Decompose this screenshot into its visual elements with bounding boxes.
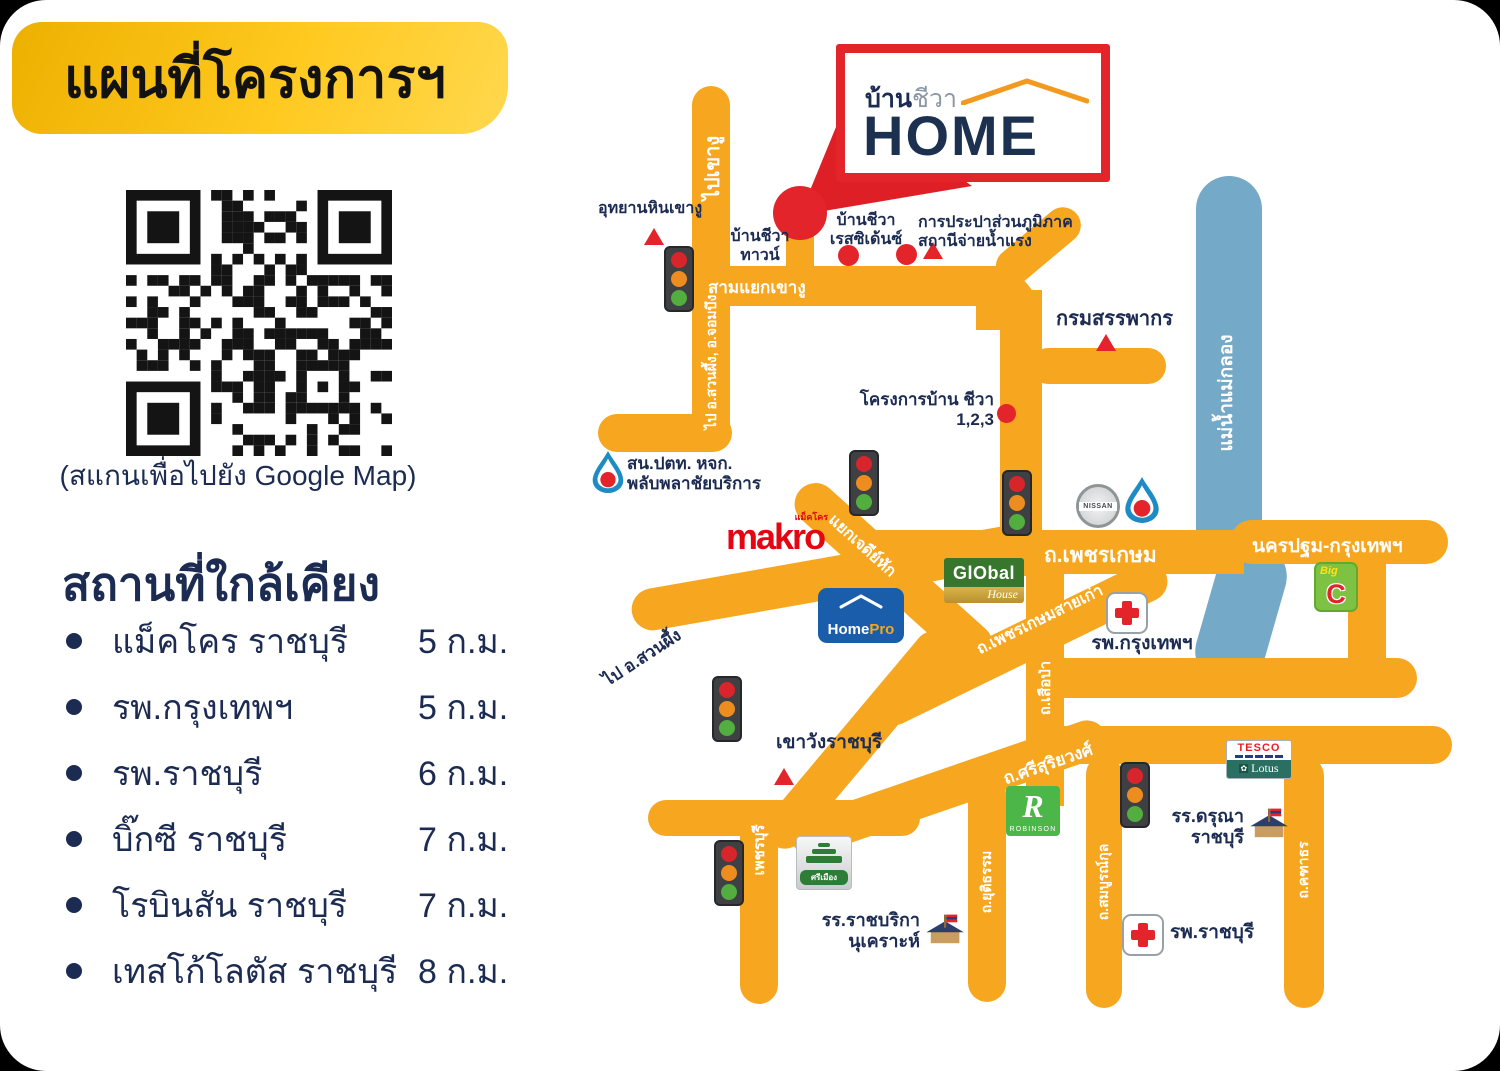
place-distance: 6 ก.ม. xyxy=(418,746,508,800)
road-label-kathathorn: ถ.คฑาธร xyxy=(1293,841,1315,898)
makro-logo: makro แม็คโคร xyxy=(726,516,824,558)
bullet-icon xyxy=(66,765,82,781)
qr-code xyxy=(126,190,392,456)
logo-home-text: HOME xyxy=(863,103,1039,168)
traffic-light-icon xyxy=(1120,762,1150,828)
qr-caption: (สแกนเพื่อไปยัง Google Map) xyxy=(58,454,418,498)
label-residence: บ้านชีวา เรสซิเด้นซ์ xyxy=(818,212,914,250)
place-name: โรบินสัน ราชบุรี xyxy=(112,878,418,932)
traffic-light-icon xyxy=(714,840,744,906)
list-item: โรบินสัน ราชบุรี7 ก.ม. xyxy=(66,884,586,925)
map-poster: แผนที่โครงการฯ (สแกนเพื่อไปยัง Google Ma… xyxy=(0,0,1500,1071)
mountain-icon-uthayan xyxy=(644,228,664,245)
bullet-icon xyxy=(66,699,82,715)
label-town: บ้านชีวา ทาวน์ xyxy=(712,228,808,266)
hospital-cross-icon xyxy=(1122,914,1164,956)
river-label: แม่น้ำแม่กลอง xyxy=(1211,334,1241,451)
global-house-logo: GlObal House xyxy=(944,558,1024,603)
road-label-phetchaburi: เพชรบุรี xyxy=(747,825,771,876)
place-name: รพ.กรุงเทพฯ xyxy=(112,680,418,734)
project-logo-box: บ้านชีวา HOME xyxy=(836,44,1110,182)
list-item: รพ.ราชบุรี6 ก.ม. xyxy=(66,752,586,793)
label-revenue: กรมสรรพากร xyxy=(1056,308,1173,332)
place-name: แม็คโคร ราชบุรี xyxy=(112,614,418,668)
road-srimueang-h xyxy=(648,800,920,836)
road-label-nakhonpathom: นครปฐม-กรุงเทพฯ xyxy=(1252,531,1403,561)
title-banner: แผนที่โครงการฯ xyxy=(12,22,508,134)
lotus-flower-icon: ✿ xyxy=(1239,764,1248,773)
homepro-logo: HomePro xyxy=(818,588,904,643)
robinson-logo: R ROBINSON xyxy=(1006,786,1060,836)
list-item: แม็คโคร ราชบุรี5 ก.ม. xyxy=(66,620,586,661)
place-distance: 7 ก.ม. xyxy=(418,878,508,932)
road-label-suanphueng-jombueng: ไป อ.สวนผึ้ง, อ.จอมบึง xyxy=(701,295,723,430)
bullet-icon xyxy=(66,633,82,649)
makro-thai-sub: แม็คโคร xyxy=(795,510,828,524)
pavilion-icon xyxy=(806,856,842,863)
school-icon xyxy=(922,912,966,948)
label-khao-wang: เขาวังราชบุรี xyxy=(776,732,882,754)
traffic-light-icon xyxy=(1002,470,1032,536)
pavilion-icon xyxy=(818,843,830,847)
srimueang-logo: ศรีเมือง xyxy=(796,836,852,890)
road-label-pai-khao-ngu: ไปเขางู xyxy=(696,136,728,200)
page-title: แผนที่โครงการฯ xyxy=(12,35,446,121)
place-name: รพ.ราชบุรี xyxy=(112,746,418,800)
nearby-heading: สถานที่ใกล้เคียง xyxy=(62,548,380,621)
label-uthayan: อุทยานหินเขางู xyxy=(598,200,702,219)
traffic-light-icon xyxy=(712,676,742,742)
bullet-icon xyxy=(66,831,82,847)
mountain-icon-khao-wang xyxy=(774,768,794,785)
road-label-pai-suanphueng: ไป อ.สวนผึ้ง xyxy=(600,625,685,690)
label-ratburika: รร.ราชบริกา นุเคราะห์ xyxy=(802,910,920,952)
list-item: เทสโก้โลตัส ราชบุรี8 ก.ม. xyxy=(66,950,586,991)
list-item: รพ.กรุงเทพฯ5 ก.ม. xyxy=(66,686,586,727)
road-label-samyak: สามแยกเขางู xyxy=(708,274,806,301)
label-ptt-station: สน.ปตท. หจก. พลับพลาชัยบริการ xyxy=(627,454,761,494)
traffic-light-icon xyxy=(664,246,694,312)
place-distance: 7 ก.ม. xyxy=(418,812,508,866)
road-label-sueapa: ถ.เสือป่า xyxy=(1033,661,1057,716)
traffic-light-icon xyxy=(849,450,879,516)
nissan-logo: NISSAN xyxy=(1076,484,1120,528)
place-distance: 5 ก.ม. xyxy=(418,614,508,668)
label-ratchaburi-hospital: รพ.ราชบุรี xyxy=(1170,922,1254,944)
bigc-logo: Big C xyxy=(1314,562,1358,612)
place-distance: 8 ก.ม. xyxy=(418,944,508,998)
roof-icon xyxy=(961,77,1089,105)
road-label-yutitham: ถ.ยุติธรรม xyxy=(976,851,998,913)
bullet-icon xyxy=(66,963,82,979)
ptt-logo xyxy=(590,450,626,494)
pavilion-icon xyxy=(812,849,836,854)
school-icon xyxy=(1246,806,1290,842)
label-bkk-hospital: รพ.กรุงเทพฯ xyxy=(1082,633,1202,655)
road-revenue-spur xyxy=(1030,348,1166,384)
ptt-logo xyxy=(1122,476,1162,524)
house-icon xyxy=(839,593,883,609)
nearby-list: แม็คโคร ราชบุรี5 ก.ม. รพ.กรุงเทพฯ5 ก.ม. … xyxy=(66,620,586,1016)
project123-dot xyxy=(997,404,1016,423)
label-daruna: รร.ดรุณา ราชบุรี xyxy=(1150,806,1244,848)
label-project123: โครงการบ้าน ชีวา 1,2,3 xyxy=(858,390,994,430)
place-distance: 5 ก.ม. xyxy=(418,680,508,734)
list-item: บิ๊กซี ราชบุรี7 ก.ม. xyxy=(66,818,586,859)
place-name: เทสโก้โลตัส ราชบุรี xyxy=(112,944,418,998)
place-name: บิ๊กซี ราชบุรี xyxy=(112,812,418,866)
label-prapa: การประปาส่วนภูมิภาค สถานีจ่ายน้ำแรง xyxy=(918,214,1073,252)
mountain-icon-revenue xyxy=(1096,334,1116,351)
road-label-phetkasem: ถ.เพชรเกษม xyxy=(1044,539,1157,572)
road-label-sombunkul: ถ.สมบูรณ์กุล xyxy=(1093,844,1115,921)
bullet-icon xyxy=(66,897,82,913)
tesco-lotus-logo: TESCO ✿Lotus xyxy=(1226,740,1292,779)
hospital-cross-icon xyxy=(1106,592,1148,634)
